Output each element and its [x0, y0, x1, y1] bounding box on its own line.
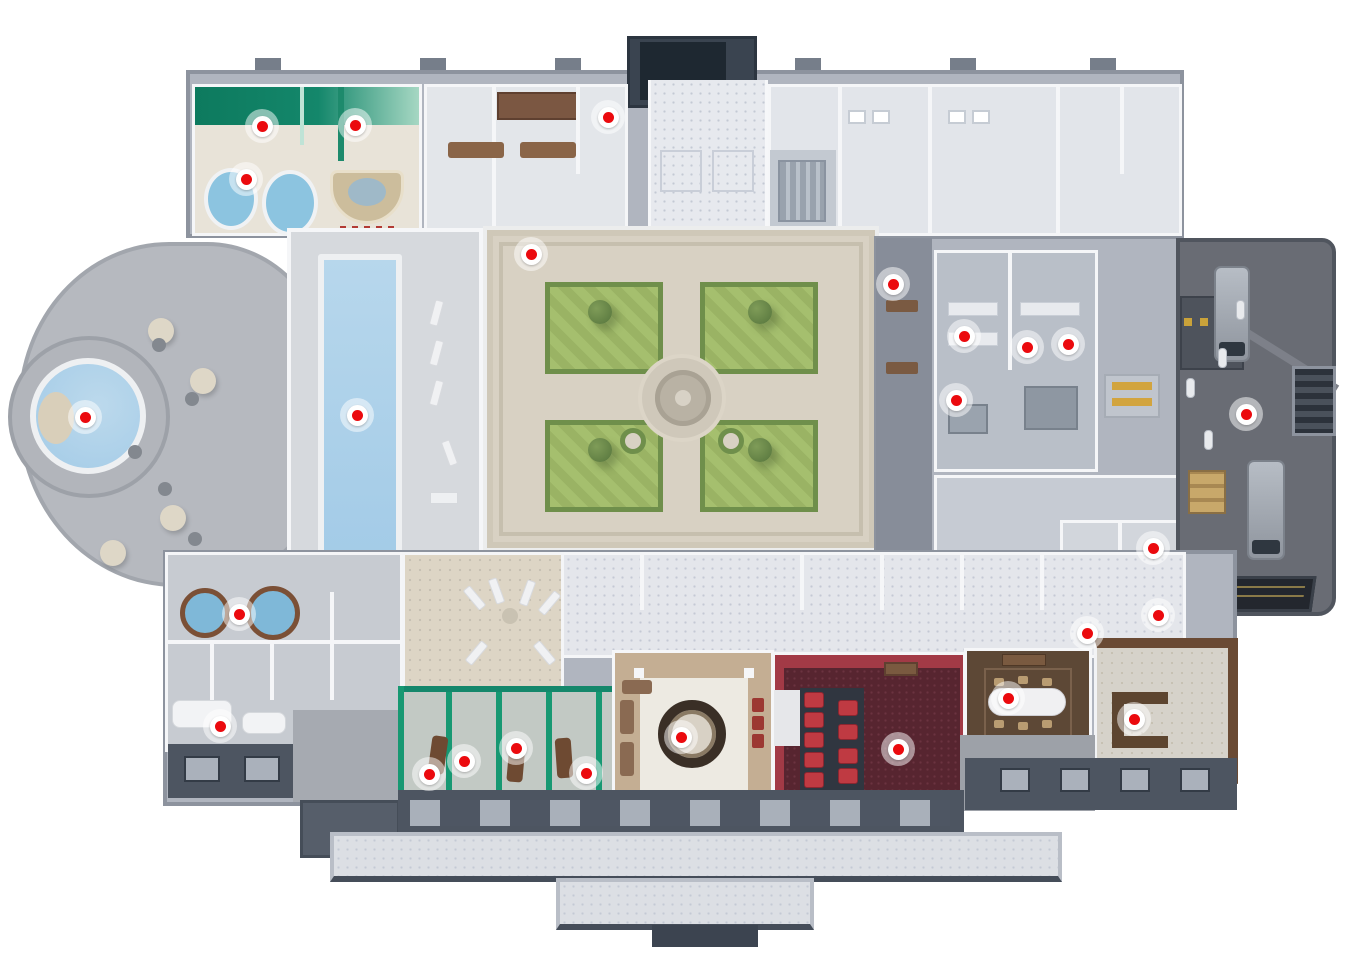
hotspot-kitchen-station-1[interactable] [947, 319, 981, 353]
hotspot-indoor-lap-pool[interactable] [340, 398, 374, 432]
hotspot-spa-jacuzzi-lounge[interactable] [229, 162, 263, 196]
hotspot-dining-room[interactable] [991, 681, 1025, 715]
hotspot-massage-room-4[interactable] [569, 756, 603, 790]
hotspot-loading-dock[interactable] [1229, 397, 1263, 431]
hotspot-outdoor-round-pool[interactable] [68, 400, 102, 434]
hotspot-changing-lounge[interactable] [203, 709, 237, 743]
hotspot-pergola-terrace[interactable] [1117, 702, 1151, 736]
hotspot-hot-tub-room[interactable] [222, 597, 256, 631]
hotspot-kitchen-station-2[interactable] [1010, 330, 1044, 364]
hotspot-spa-treatment-room-1[interactable] [245, 109, 279, 143]
hotspot-utility-room-2[interactable] [1141, 598, 1175, 632]
hotspot-pool-hall-entrance[interactable] [514, 237, 548, 271]
hotspot-utility-room-1[interactable] [1136, 531, 1170, 565]
hotspot-kitchen-station-3[interactable] [1051, 327, 1085, 361]
hotspot-main-kitchen[interactable] [939, 383, 973, 417]
hotspot-service-corridor[interactable] [876, 267, 910, 301]
floorplan-viewer [0, 0, 1360, 961]
hotspot-staff-room[interactable] [591, 100, 625, 134]
hotspot-cinema-room[interactable] [881, 732, 915, 766]
hotspot-spa-treatment-room-2[interactable] [338, 108, 372, 142]
hotspot-massage-room-2[interactable] [447, 744, 481, 778]
hotspot-massage-room-1[interactable] [412, 757, 446, 791]
hotspot-grand-lounge[interactable] [664, 720, 698, 754]
hotspot-massage-room-3[interactable] [499, 731, 533, 765]
hotspot-layer [0, 0, 1360, 961]
hotspot-storage-room[interactable] [1070, 616, 1104, 650]
